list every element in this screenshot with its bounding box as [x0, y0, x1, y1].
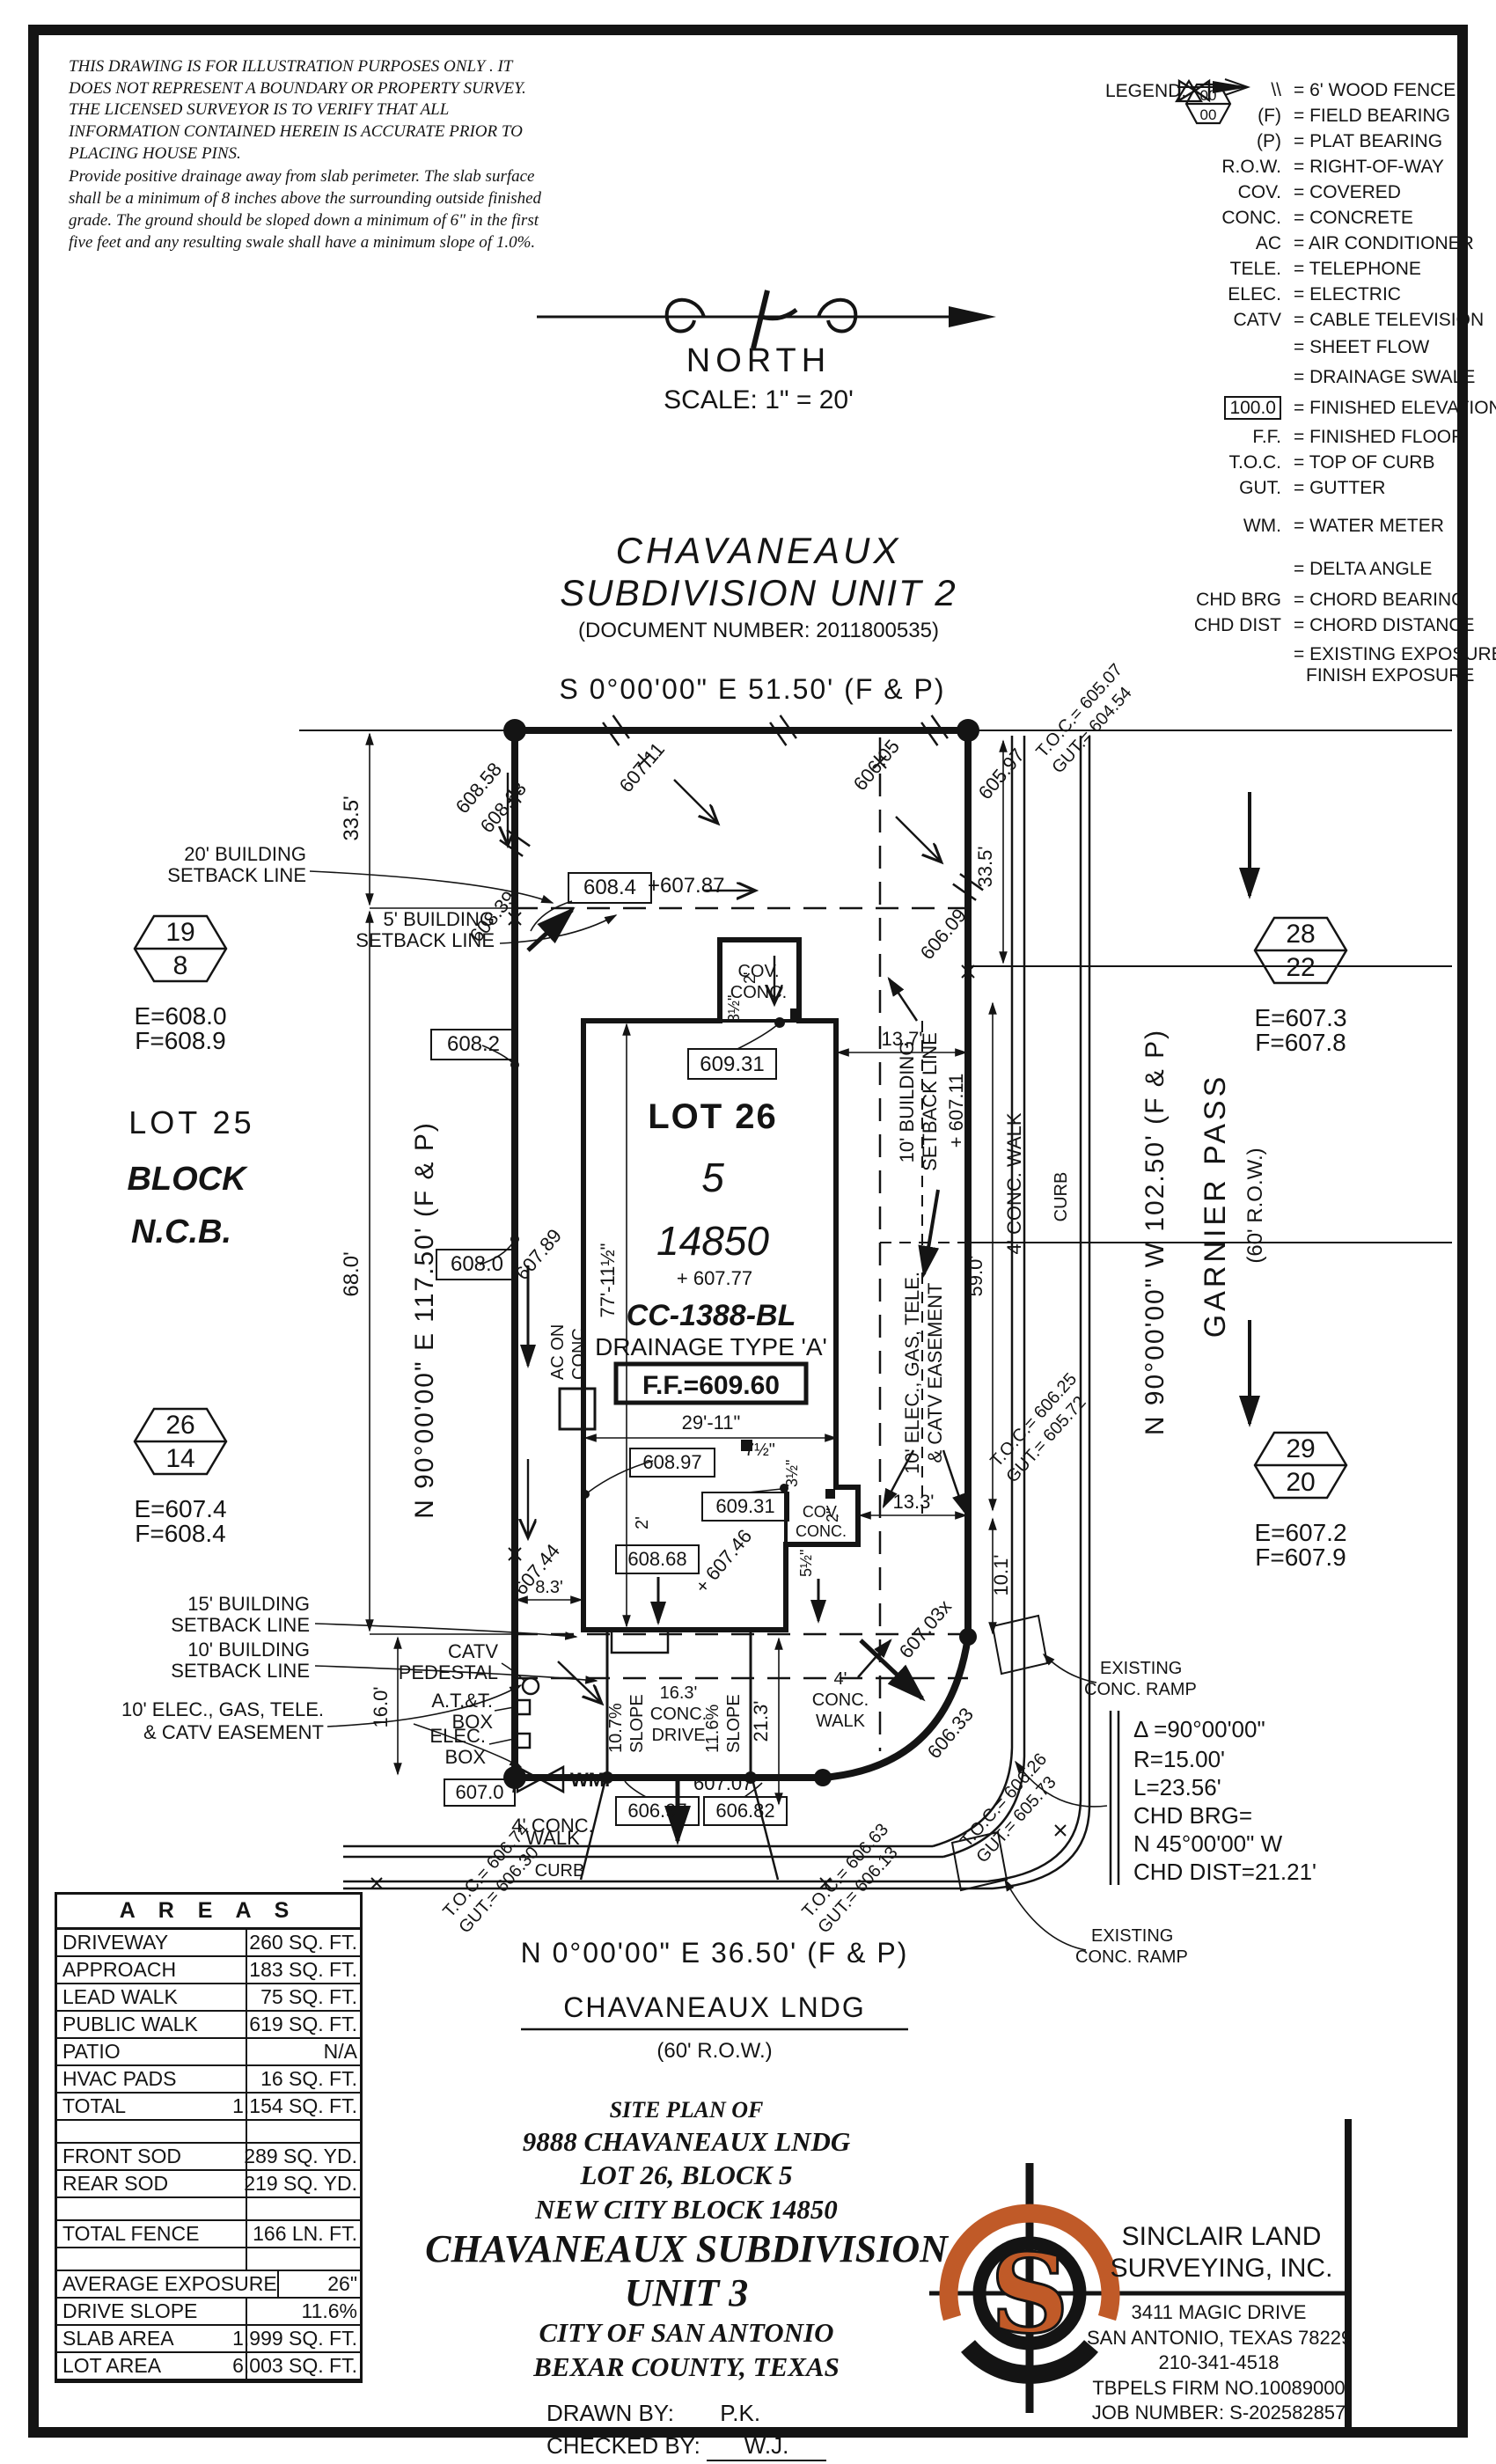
marker-bottom: 14: [165, 1444, 194, 1473]
row-sym: R.O.W.: [1174, 157, 1281, 178]
street-bottom-name: CHAVANEAUX LNDG: [563, 1991, 866, 2023]
dim-59: 59.0': [964, 1255, 986, 1296]
titleblock-subdivision: CHAVANEAUX SUBDIVISION: [414, 2227, 959, 2272]
table-row: LEAD WALK75 SQ. FT.: [57, 1984, 360, 2012]
marker-top: 19: [165, 918, 194, 947]
walk-right-4: 4': [834, 1669, 847, 1689]
att-box-label: A.T.&T.: [431, 1690, 493, 1712]
catv-pedestal-label2: PEDESTAL: [399, 1661, 498, 1683]
curb-bottom: CURB: [535, 1861, 585, 1881]
spot-607-46: + 607.46: [691, 1525, 757, 1597]
curve-chord-bearing-label: CHD BRG=: [1133, 1802, 1252, 1829]
svg-text:00: 00: [1200, 106, 1217, 123]
company-firm: TBPELS FIRM NO.10089000: [1087, 2376, 1351, 2402]
setback-20-label: 20' BUILDING: [184, 843, 306, 865]
boxed-606-97: 606.97: [627, 1800, 686, 1822]
plat-bearing-sym: (P): [1174, 131, 1281, 152]
table-row: PUBLIC WALK619 SQ. FT.: [57, 2012, 360, 2039]
walk-garnier: 4' CONC. WALK: [1003, 1112, 1025, 1254]
slope-right-label: SLOPE: [724, 1694, 744, 1753]
title-block: SITE PLAN OF 9888 CHAVANEAUX LNDG LOT 26…: [414, 2096, 959, 2464]
finish-elev-26: F=608.4: [135, 1520, 226, 1547]
table-row: [57, 2248, 360, 2271]
table-row: DRIVEWAY260 SQ. FT.: [57, 1930, 360, 1957]
dim-13-3: 13.3': [892, 1491, 934, 1513]
lot-spot-elev: + 607.77: [677, 1267, 752, 1289]
titleblock-form: DRAWN BY: P.K. CHECKED BY: W.J. DATE: 7/…: [546, 2396, 826, 2464]
gut-sym: GUT.: [1174, 478, 1281, 499]
slope-right-pct: 11.6%: [703, 1705, 722, 1753]
spot-607-03: 607.03x: [895, 1595, 956, 1662]
bearing-left: N 90°00'00" E 117.50' (F & P): [410, 1121, 439, 1519]
company-city: SAN ANTONIO, TEXAS 78229: [1087, 2326, 1351, 2351]
spot-606-09: 606.09: [916, 905, 971, 964]
curve-delta: Δ =90°00'00": [1133, 1716, 1265, 1742]
boxed-608-68: 608.68: [627, 1548, 686, 1570]
wm-sym: WM.: [1243, 516, 1281, 536]
curve-chord-bearing: N 45°00'00" W: [1133, 1830, 1283, 1857]
chd-brg-sym: CHD BRG: [1174, 590, 1281, 611]
boxed-606-82: 606.82: [715, 1800, 774, 1822]
survey-sheet: NORTH SCALE: 1" = 20' CHAVANEAUX SUBDIVI…: [0, 0, 1496, 2464]
easement-left-label2: & CATV EASEMENT: [143, 1721, 324, 1743]
driveway-lines: [581, 1630, 778, 1880]
lot-marker-29-20: 29 20: [1255, 1433, 1346, 1498]
company-address: 3411 MAGIC DRIVE SAN ANTONIO, TEXAS 7822…: [1087, 2300, 1351, 2426]
dim-7half: 7½": [744, 1441, 775, 1460]
marker-top: 29: [1286, 1434, 1315, 1463]
svg-text:00: 00: [1200, 87, 1217, 104]
spot-605-97: 605.97: [974, 744, 1029, 804]
easement-left-label: 10' ELEC., GAS, TELE.: [121, 1698, 324, 1720]
lot-marker-26-14: 26 14: [135, 1409, 226, 1474]
dim-10-1: 10.1': [990, 1554, 1012, 1595]
dim-21-3: 21.3': [750, 1700, 772, 1742]
table-row: [57, 2121, 360, 2144]
titleblock-county: BEXAR COUNTY, TEXAS: [414, 2350, 959, 2385]
existing-ramp-label-2b: CONC. RAMP: [1075, 1947, 1188, 1967]
spot-607-11: 607.11: [615, 738, 669, 796]
toc-sym: T.O.C.: [1174, 452, 1281, 473]
existing-elev-26: E=607.4: [134, 1495, 226, 1522]
marker-bottom: 8: [173, 951, 188, 980]
dim-16: 16.0': [370, 1686, 392, 1727]
table-row: APPROACH183 SQ. FT.: [57, 1957, 360, 1984]
subdivision-name: CHAVANEAUX: [616, 530, 902, 571]
dim-3half-rear: 3½": [783, 1460, 801, 1487]
titleblock-line: SITE PLAN OF: [414, 2096, 959, 2125]
spot-607-87: +607.87: [648, 874, 724, 898]
legend-title: LEGEND:: [1105, 81, 1186, 102]
cov-sym: COV.: [1174, 182, 1281, 203]
dim-33-5-right: 33.5': [974, 846, 996, 887]
finished-floor: F.F.=609.60: [642, 1371, 780, 1400]
elec-sym: ELEC.: [1174, 284, 1281, 305]
setback-20-label2: SETBACK LINE: [167, 864, 306, 886]
titleblock-line: LOT 26, BLOCK 5: [414, 2159, 959, 2193]
conc-sym: CONC.: [1174, 208, 1281, 229]
walk-right-conc: CONC.: [812, 1690, 869, 1710]
setback-15-label: 15' BUILDING: [187, 1593, 310, 1615]
ac-on-conc-label2: CONC.: [569, 1324, 589, 1380]
areas-title: A R E A S: [57, 1895, 360, 1930]
dim-house-width: 29'-11": [682, 1412, 741, 1434]
street-bottom-row: (60' R.O.W.): [656, 2039, 772, 2063]
drive-dim: 16.3': [660, 1683, 698, 1703]
boxed-608-4: 608.4: [583, 876, 636, 899]
titleblock-line: 9888 CHAVANEAUX LNDG: [414, 2125, 959, 2160]
boxed-609-31-a: 609.31: [700, 1052, 764, 1076]
existing-elev-29: E=607.2: [1254, 1519, 1346, 1546]
table-row: SLAB AREA1,999 SQ. FT.: [57, 2326, 360, 2353]
drawn-by-label: DRAWN BY:: [546, 2400, 674, 2426]
disclaimer-p2: Provide positive drainage away from slab…: [69, 166, 554, 253]
subdivision-unit: SUBDIVISION UNIT 2: [560, 572, 957, 613]
company-name: SINCLAIR LAND SURVEYING, INC.: [1102, 2221, 1341, 2284]
company-job-number: JOB NUMBER: S-202582857: [1087, 2401, 1351, 2426]
table-row: PATION/A: [57, 2039, 360, 2066]
setback-10-label2: SETBACK LINE: [171, 1660, 310, 1682]
company-phone: 210-341-4518: [1087, 2350, 1351, 2376]
catv-pedestal-icon: [523, 1678, 539, 1694]
curve-data-block: [1111, 1711, 1118, 1885]
disclaimer-p1: THIS DRAWING IS FOR ILLUSTRATION PURPOSE…: [69, 56, 554, 165]
setback-10-right2: SETBACK LINE: [919, 1032, 941, 1171]
spot-607-89: 607.89: [511, 1225, 566, 1285]
dim-68: 68.0': [340, 1251, 363, 1296]
table-row: [57, 2198, 360, 2221]
drive-drive: DRIVE: [651, 1726, 705, 1745]
lot-marker-28-22: 28 22: [1255, 918, 1346, 983]
checked-by-label: CHECKED BY:: [546, 2432, 700, 2459]
setback-10-label: 10' BUILDING: [187, 1639, 310, 1661]
curve-length: L=23.56': [1133, 1774, 1221, 1800]
table-row: TOTAL FENCE166 LN. FT.: [57, 2221, 360, 2248]
water-meter-label: WM.: [570, 1769, 610, 1791]
adjacent-ncb: N.C.B.: [131, 1214, 231, 1250]
table-row: REAR SOD219 SQ. YD.: [57, 2171, 360, 2198]
areas-table: A R E A S DRIVEWAY260 SQ. FT. APPROACH18…: [55, 1892, 363, 2383]
drainage-type: DRAINAGE TYPE 'A': [595, 1333, 827, 1360]
adjacent-block: BLOCK: [127, 1161, 248, 1198]
north-label: NORTH: [686, 342, 831, 379]
dim-33-5-left: 33.5': [340, 796, 363, 840]
elec-box-label: ELEC.: [429, 1725, 486, 1747]
slope-left-label: SLOPE: [627, 1694, 647, 1753]
cov-conc-rear2: CONC.: [796, 1522, 847, 1540]
boxed-608-97: 608.97: [642, 1451, 701, 1473]
spot-607-07: 607.07: [693, 1772, 752, 1794]
ac-pad: [560, 1389, 595, 1429]
walk-right-walk: WALK: [816, 1712, 866, 1731]
spot-606-33: 606.33: [923, 1704, 978, 1764]
dim-2ft-rear: 2': [633, 1516, 652, 1529]
bearing-top: S 0°00'00" E 51.50' (F & P): [559, 673, 945, 705]
tele-sym: TELE.: [1174, 259, 1281, 280]
lot-ncb-number: 14850: [656, 1218, 769, 1264]
table-row: AVERAGE EXPOSURE26": [57, 2271, 360, 2299]
marker-top: 28: [1286, 920, 1315, 949]
lot-marker-19-8: 19 8: [135, 916, 226, 981]
street-right-name: GARNIER PASS: [1199, 1074, 1232, 1338]
bearing-bottom: N 0°00'00" E 36.50' (F & P): [521, 1937, 909, 1969]
scale-label: SCALE: 1" = 20': [664, 385, 854, 414]
marker-bottom: 22: [1286, 953, 1315, 982]
existing-elev-28: E=607.3: [1254, 1004, 1346, 1031]
document-number: (DOCUMENT NUMBER: 2011800535): [578, 619, 939, 642]
drive-conc: CONC.: [650, 1705, 707, 1724]
table-row: FRONT SOD289 SQ. YD.: [57, 2144, 360, 2171]
spot-607-11-right: + 607.11: [945, 1074, 967, 1148]
boxed-607-0: 607.0: [455, 1781, 503, 1803]
boxed-609-31-b: 609.31: [715, 1495, 774, 1517]
elec-box-label2: BOX: [445, 1746, 487, 1768]
easement-right2: & CATV EASEMENT: [924, 1283, 946, 1463]
existing-ramp-label-1: EXISTING: [1100, 1659, 1182, 1678]
bearing-right: N 90°00'00" W 102.50' (F & P): [1140, 1029, 1170, 1435]
setback-10-right: 10' BUILDING: [896, 1041, 918, 1163]
boxed-608-2: 608.2: [447, 1032, 500, 1056]
finish-elev-28: F=607.8: [1255, 1029, 1346, 1056]
table-row: HVAC PADS16 SQ. FT.: [57, 2066, 360, 2094]
titleblock-unit: UNIT 3: [414, 2271, 959, 2316]
ac-sym: AC: [1174, 233, 1281, 254]
cov-conc-rear: COV.: [803, 1503, 840, 1521]
table-row: LOT AREA6,003 SQ. FT.: [57, 2353, 360, 2380]
titleblock-city: CITY OF SAN ANTONIO: [414, 2316, 959, 2350]
adjacent-lot: LOT 25: [128, 1104, 254, 1140]
ff-sym: F.F.: [1174, 427, 1281, 448]
street-right-row: (60' R.O.W.): [1243, 1148, 1267, 1263]
checked-by-value: W.J.: [707, 2432, 826, 2461]
walk-bottom2: WALK: [525, 1827, 580, 1849]
dim-5half: 5½": [797, 1550, 815, 1577]
chd-dist-sym: CHD DIST: [1174, 615, 1281, 636]
cov-conc-front2: CONC.: [730, 983, 787, 1002]
marker-top: 26: [165, 1411, 194, 1440]
finish-elev-29: F=607.9: [1255, 1544, 1346, 1571]
catv-sym: CATV: [1174, 310, 1281, 331]
curve-radius: R=15.00': [1133, 1746, 1225, 1772]
marker-bottom: 20: [1286, 1468, 1315, 1497]
logo-letter: S: [990, 2231, 1069, 2358]
drawn-by-value: P.K.: [680, 2400, 800, 2429]
curve-chord-distance: CHD DIST=21.21': [1133, 1859, 1316, 1885]
slope-left-pct: 10.7%: [606, 1703, 626, 1753]
lot-cc-number: CC-1388-BL: [627, 1299, 796, 1332]
lot-name: LOT 26: [648, 1097, 778, 1136]
boxed-608-0: 608.0: [451, 1252, 503, 1276]
table-row: DRIVE SLOPE11.6%: [57, 2299, 360, 2326]
existing-elev-19: E=608.0: [134, 1002, 226, 1030]
spot-606-05: 606.05: [849, 736, 904, 796]
table-row: TOTAL1,154 SQ. FT.: [57, 2094, 360, 2121]
disclaimer-note: THIS DRAWING IS FOR ILLUSTRATION PURPOSE…: [69, 56, 554, 255]
easement-right: 10' ELEC., GAS, TELE.: [901, 1272, 923, 1474]
north-arrow-icon: [537, 290, 996, 348]
curb-garnier: CURB: [1052, 1172, 1071, 1222]
dim-house-height: 77'-11½": [597, 1243, 619, 1318]
lot-block-number: 5: [701, 1155, 724, 1200]
existing-ramp-label-2: EXISTING: [1091, 1926, 1173, 1946]
titleblock-line: NEW CITY BLOCK 14850: [414, 2193, 959, 2227]
ac-on-conc-label: AC ON: [548, 1324, 568, 1380]
finished-elevation-sym: 100.0: [1224, 396, 1281, 420]
cov-conc-front: COV.: [737, 962, 779, 981]
setback-15-label2: SETBACK LINE: [171, 1614, 310, 1636]
catv-pedestal-label: CATV: [448, 1640, 498, 1662]
legend: \\= 6' WOOD FENCE (F)= FIELD BEARING (P)…: [1174, 77, 1464, 693]
existing-ramp-label-1b: CONC. RAMP: [1084, 1680, 1197, 1699]
finish-elev-19: F=608.9: [135, 1027, 226, 1054]
company-street: 3411 MAGIC DRIVE: [1087, 2300, 1351, 2326]
